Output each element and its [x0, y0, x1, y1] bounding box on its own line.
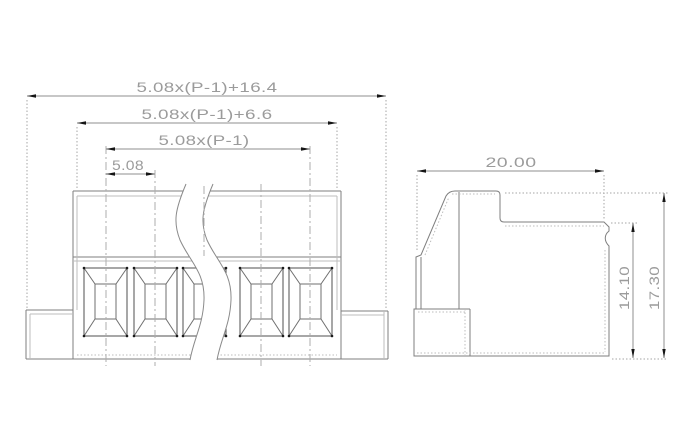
dim-label-top-width: 20.00 [486, 154, 537, 170]
dim-label-front-height: 14.10 [616, 266, 632, 310]
dim-label-contact-span: 5.08x(P-1) [159, 132, 250, 148]
front-right-foot-inner [341, 311, 384, 359]
dim-label-housing-width: 5.08x(P-1)+6.6 [142, 106, 273, 122]
side-slope-inner [425, 197, 449, 255]
extension-lines [27, 100, 668, 359]
side-profile [414, 191, 609, 356]
technical-drawing: 5.08x(P-1)+16.4 5.08x(P-1)+6.6 5.08x(P-1… [0, 0, 680, 440]
front-left-foot [26, 310, 73, 359]
dimension-lines [27, 96, 664, 358]
front-left-foot-inner [30, 314, 73, 359]
side-view-inner-lines [417, 194, 605, 356]
dim-label-overall-width: 5.08x(P-1)+16.4 [137, 79, 278, 95]
front-right-foot [341, 311, 388, 359]
dim-label-pitch: 5.08 [112, 157, 144, 173]
side-view-outline [414, 191, 609, 356]
side-foot [416, 309, 470, 356]
drawing-canvas: 5.08x(P-1)+16.4 5.08x(P-1)+6.6 5.08x(P-1… [0, 0, 680, 440]
dimension-arrows [27, 94, 666, 358]
dim-label-overall-height: 17.30 [646, 266, 662, 310]
